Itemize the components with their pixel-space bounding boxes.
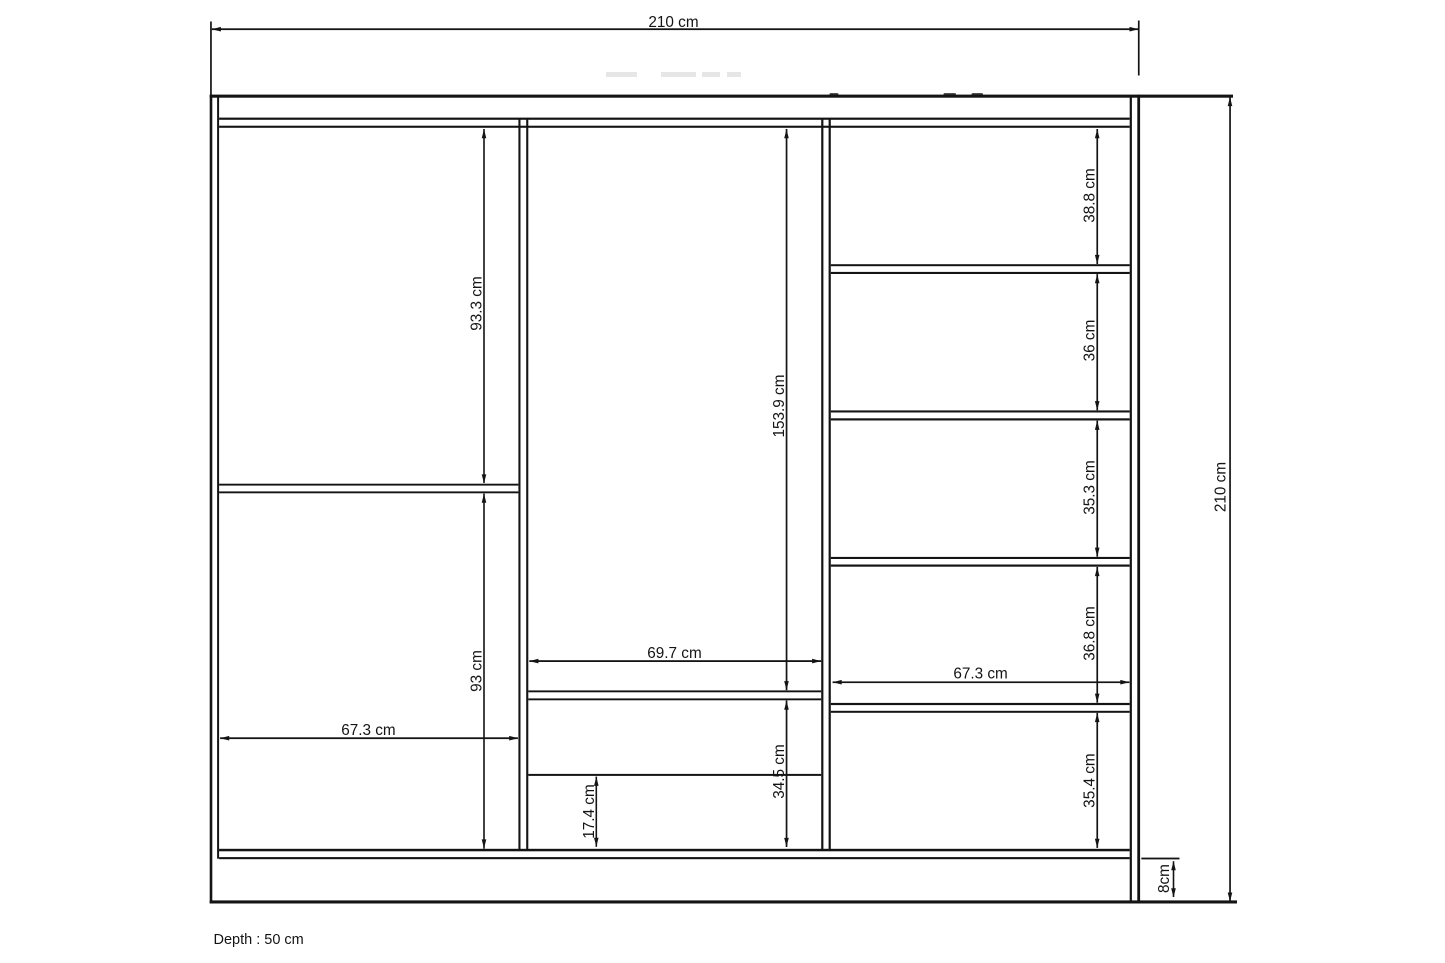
svg-text:153.9 cm: 153.9 cm: [771, 375, 788, 438]
svg-text:93.3 cm: 93.3 cm: [468, 276, 485, 330]
svg-text:36 cm: 36 cm: [1082, 320, 1099, 362]
svg-text:210 cm: 210 cm: [648, 14, 698, 31]
svg-text:69.7 cm: 69.7 cm: [647, 645, 701, 662]
svg-text:67.3 cm: 67.3 cm: [341, 722, 395, 739]
svg-text:17.4 cm: 17.4 cm: [581, 784, 598, 838]
svg-text:35.3 cm: 35.3 cm: [1082, 460, 1099, 514]
svg-text:36.8 cm: 36.8 cm: [1082, 606, 1099, 660]
svg-text:34.5 cm: 34.5 cm: [771, 744, 788, 798]
svg-text:93 cm: 93 cm: [468, 650, 485, 692]
svg-text:35.4 cm: 35.4 cm: [1082, 753, 1099, 807]
svg-text:Depth : 50 cm: Depth : 50 cm: [214, 932, 304, 948]
svg-text:8cm: 8cm: [1156, 864, 1173, 893]
svg-text:210 cm: 210 cm: [1213, 462, 1230, 512]
svg-text:67.3 cm: 67.3 cm: [953, 666, 1007, 683]
svg-text:38.8 cm: 38.8 cm: [1082, 168, 1099, 222]
